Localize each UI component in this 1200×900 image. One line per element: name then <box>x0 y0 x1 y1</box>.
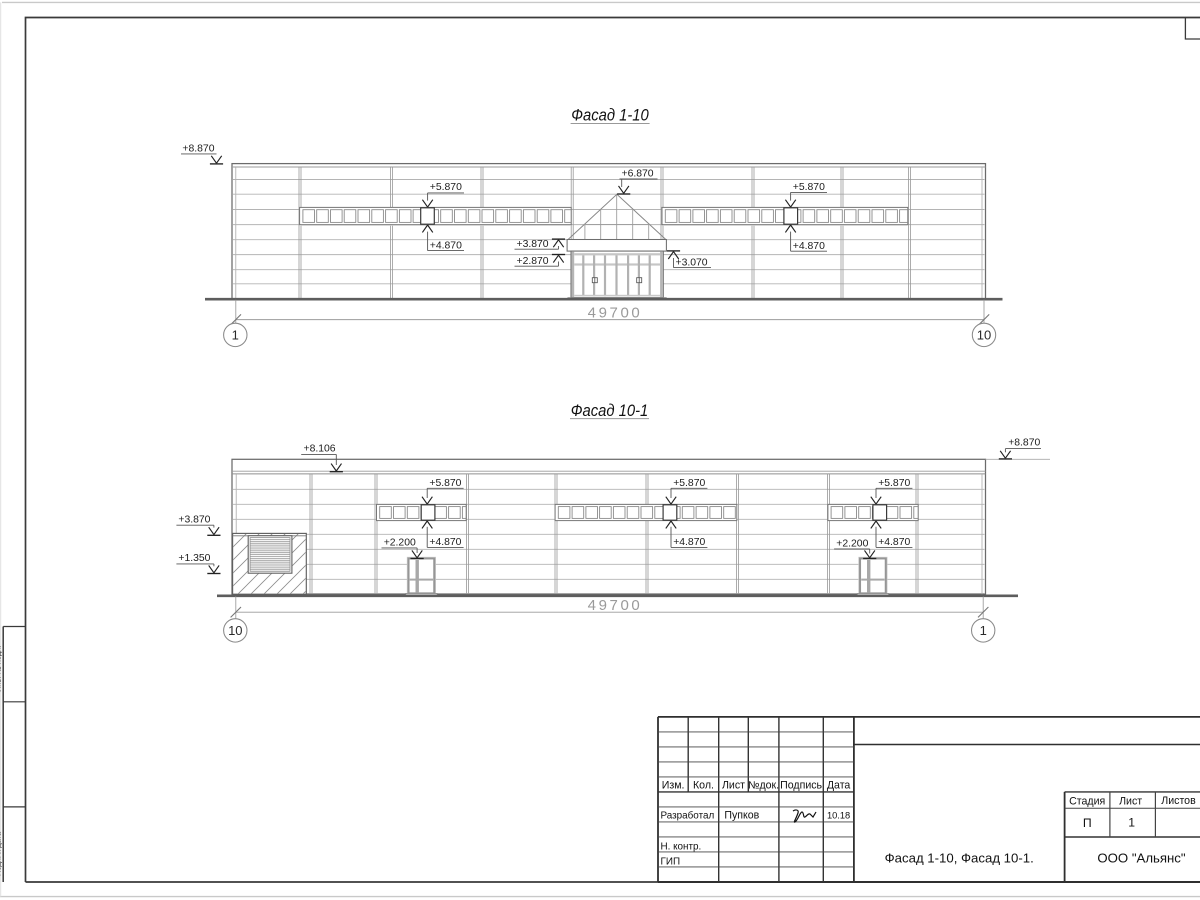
svg-text:10: 10 <box>228 623 242 638</box>
svg-text:1: 1 <box>232 328 239 343</box>
svg-text:10.18: 10.18 <box>827 810 850 820</box>
svg-text:ООО "Альянс": ООО "Альянс" <box>1097 850 1185 865</box>
svg-text:Разработал: Разработал <box>661 810 715 821</box>
svg-text:+8.106: +8.106 <box>304 444 336 455</box>
svg-text:+4.870: +4.870 <box>429 537 461 548</box>
svg-text:Инв. № подл.: Инв. № подл. <box>0 645 3 692</box>
svg-text:49700: 49700 <box>588 597 643 614</box>
svg-text:Лист: Лист <box>722 780 745 792</box>
svg-text:49700: 49700 <box>588 304 643 321</box>
svg-text:+5.870: +5.870 <box>673 478 705 489</box>
svg-text:+4.870: +4.870 <box>673 537 705 548</box>
svg-text:+4.870: +4.870 <box>878 537 910 548</box>
svg-text:Подпись: Подпись <box>780 780 822 792</box>
svg-text:Фасад 10-1: Фасад 10-1 <box>571 402 649 420</box>
svg-text:Фасад 1-10: Фасад 1-10 <box>571 107 649 125</box>
svg-text:+3.870: +3.870 <box>517 239 549 250</box>
svg-text:+2.200: +2.200 <box>384 538 416 549</box>
svg-text:+2.870: +2.870 <box>517 256 549 267</box>
svg-text:+2.200: +2.200 <box>836 539 868 550</box>
svg-text:Листов: Листов <box>1161 795 1196 807</box>
svg-text:+8.870: +8.870 <box>1008 438 1040 449</box>
svg-text:+4.870: +4.870 <box>430 240 462 251</box>
svg-text:+5.870: +5.870 <box>878 478 910 489</box>
svg-text:+8.870: +8.870 <box>182 144 214 155</box>
svg-text:Лист: Лист <box>1119 796 1142 808</box>
svg-text:Н. контр.: Н. контр. <box>661 842 702 853</box>
svg-text:+6.870: +6.870 <box>622 169 654 180</box>
svg-text:10: 10 <box>977 328 991 343</box>
svg-text:Подп. и дата: Подп. и дата <box>0 831 3 876</box>
svg-text:Пупков: Пупков <box>724 810 759 822</box>
svg-text:Фасад 1-10, Фасад 10-1.: Фасад 1-10, Фасад 10-1. <box>885 850 1034 865</box>
svg-text:1: 1 <box>980 623 987 638</box>
svg-text:+5.870: +5.870 <box>430 182 462 193</box>
svg-text:+3.870: +3.870 <box>178 515 210 526</box>
svg-text:+3.070: +3.070 <box>676 257 708 268</box>
svg-text:+5.870: +5.870 <box>429 478 461 489</box>
svg-text:+4.870: +4.870 <box>793 241 825 252</box>
svg-text:ГИП: ГИП <box>661 856 681 867</box>
svg-text:Изм.: Изм. <box>662 780 685 792</box>
svg-text:Кол.: Кол. <box>693 780 714 792</box>
svg-text:П: П <box>1083 816 1092 830</box>
svg-text:1: 1 <box>1128 816 1135 830</box>
svg-text:№док.: №док. <box>748 780 779 792</box>
svg-text:Дата: Дата <box>827 780 851 792</box>
svg-text:+1.350: +1.350 <box>178 553 210 564</box>
svg-text:+5.870: +5.870 <box>793 182 825 193</box>
svg-text:Стадия: Стадия <box>1069 796 1105 808</box>
